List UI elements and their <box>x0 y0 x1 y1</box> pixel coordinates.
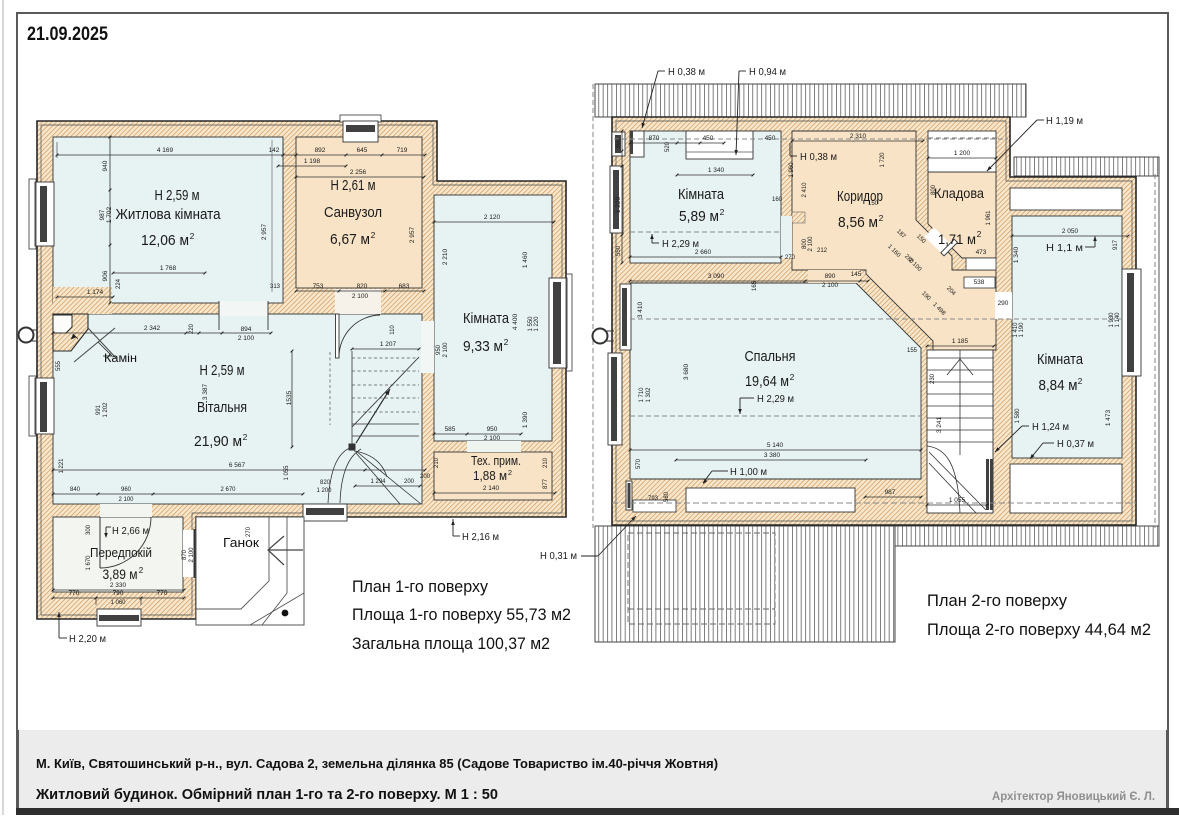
svg-text:1 580: 1 580 <box>1015 408 1021 424</box>
svg-text:Н 1,00 м: Н 1,00 м <box>730 466 767 478</box>
svg-text:3 680: 3 680 <box>683 363 690 380</box>
svg-text:1 221: 1 221 <box>59 458 65 474</box>
svg-text:1 200: 1 200 <box>954 150 971 157</box>
svg-text:200: 200 <box>404 479 415 485</box>
svg-text:1 220: 1 220 <box>534 316 540 332</box>
svg-text:230: 230 <box>930 373 936 384</box>
svg-text:877: 877 <box>543 478 549 489</box>
svg-text:2 100: 2 100 <box>822 282 839 289</box>
svg-text:2 660: 2 660 <box>695 249 712 256</box>
svg-text:2 100: 2 100 <box>352 293 369 300</box>
svg-text:Н 2,61 м: Н 2,61 м <box>331 177 376 194</box>
svg-text:1,88 м: 1,88 м <box>473 469 507 483</box>
svg-text:3,89 м: 3,89 м <box>103 567 138 582</box>
svg-text:892: 892 <box>315 147 326 154</box>
svg-text:793: 793 <box>648 496 659 502</box>
svg-text:2 140: 2 140 <box>483 485 500 492</box>
svg-text:Н 2,59 м: Н 2,59 м <box>155 187 200 204</box>
svg-text:570: 570 <box>636 458 642 469</box>
svg-text:2: 2 <box>243 432 248 442</box>
svg-text:5,89 м: 5,89 м <box>679 208 719 225</box>
svg-text:753: 753 <box>313 283 324 290</box>
svg-text:820: 820 <box>357 283 368 290</box>
svg-text:450: 450 <box>765 135 776 142</box>
svg-text:1 960: 1 960 <box>789 162 795 178</box>
svg-text:2 310: 2 310 <box>850 133 867 140</box>
svg-text:870: 870 <box>182 549 188 560</box>
svg-text:2: 2 <box>879 213 884 223</box>
svg-text:1,71 м: 1,71 м <box>938 231 976 247</box>
svg-text:Камін: Камін <box>104 353 137 365</box>
svg-text:2: 2 <box>139 566 144 575</box>
svg-text:991: 991 <box>96 404 102 415</box>
svg-text:1 390: 1 390 <box>522 411 529 428</box>
svg-text:2 120: 2 120 <box>484 214 501 221</box>
svg-text:Н 2,66 м: Н 2,66 м <box>112 525 149 537</box>
svg-text:Кімната: Кімната <box>463 310 510 327</box>
svg-text:645: 645 <box>357 147 368 154</box>
svg-text:Н 0,94 м: Н 0,94 м <box>749 66 786 78</box>
svg-text:719: 719 <box>397 147 408 154</box>
svg-text:1 710: 1 710 <box>639 387 645 403</box>
svg-text:450: 450 <box>703 135 714 142</box>
svg-text:1 670: 1 670 <box>86 555 92 571</box>
svg-text:Вітальня: Вітальня <box>197 399 247 416</box>
svg-text:5 140: 5 140 <box>767 442 784 449</box>
svg-text:555: 555 <box>56 360 62 371</box>
svg-text:Н 2,16 м: Н 2,16 м <box>462 531 499 543</box>
svg-text:110: 110 <box>390 325 396 335</box>
svg-text:313: 313 <box>270 284 281 290</box>
svg-text:1 055: 1 055 <box>284 465 290 481</box>
svg-text:950: 950 <box>487 426 498 433</box>
svg-text:200: 200 <box>420 474 431 480</box>
svg-text:770: 770 <box>69 590 80 597</box>
svg-text:Н 0,38 м: Н 0,38 м <box>800 151 837 163</box>
svg-text:906: 906 <box>102 270 109 281</box>
svg-text:Площа 2-го поверху 44,64 м2: Площа 2-го поверху 44,64 м2 <box>927 620 1151 639</box>
svg-text:Н 2,20 м: Н 2,20 м <box>69 633 106 645</box>
svg-text:917: 917 <box>1113 239 1119 250</box>
svg-text:1 185: 1 185 <box>952 338 969 345</box>
svg-text:1 220: 1 220 <box>615 196 622 213</box>
svg-text:840: 840 <box>70 487 81 493</box>
svg-text:1 174: 1 174 <box>87 289 104 296</box>
svg-text:2 256: 2 256 <box>350 169 367 176</box>
svg-text:2 330: 2 330 <box>110 582 127 589</box>
svg-text:Н 2,29 м: Н 2,29 м <box>757 393 794 405</box>
svg-text:145: 145 <box>851 271 862 278</box>
svg-text:210: 210 <box>434 457 440 468</box>
svg-text:270: 270 <box>246 526 252 537</box>
svg-text:270: 270 <box>785 255 796 261</box>
svg-text:2 050: 2 050 <box>1062 228 1079 235</box>
svg-text:585: 585 <box>445 426 456 433</box>
svg-text:1 473: 1 473 <box>1105 409 1112 426</box>
svg-text:2: 2 <box>371 230 376 240</box>
svg-text:8,56 м: 8,56 м <box>838 214 878 231</box>
svg-text:Н 2,29 м: Н 2,29 м <box>662 238 699 250</box>
svg-text:2 670: 2 670 <box>220 487 236 493</box>
svg-text:Площа 1-го поверху 55,73 м2: Площа 1-го поверху 55,73 м2 <box>352 605 571 624</box>
svg-text:770: 770 <box>157 590 168 597</box>
svg-text:820: 820 <box>320 480 331 486</box>
svg-text:М. Київ, Святошинський р-н., в: М. Київ, Святошинський р-н., вул. Садова… <box>36 756 718 771</box>
svg-text:Н 1,1 м: Н 1,1 м <box>1046 242 1083 254</box>
svg-text:8,84 м: 8,84 м <box>1039 377 1078 394</box>
svg-text:1 207: 1 207 <box>380 341 397 348</box>
svg-text:Н 0,37 м: Н 0,37 м <box>1057 438 1094 450</box>
svg-text:2 410: 2 410 <box>802 182 808 198</box>
svg-text:2: 2 <box>508 468 512 477</box>
svg-text:6 567: 6 567 <box>229 462 246 469</box>
svg-text:21,90 м: 21,90 м <box>194 433 242 450</box>
svg-text:3 241: 3 241 <box>936 416 943 433</box>
svg-text:1 140: 1 140 <box>1115 312 1121 328</box>
svg-text:Житловий будинок. Обмірний пла: Житловий будинок. Обмірний план 1-го та … <box>35 787 498 803</box>
svg-text:2 100: 2 100 <box>118 497 134 503</box>
svg-text:3 380: 3 380 <box>764 452 781 459</box>
svg-text:9,33 м: 9,33 м <box>463 338 503 355</box>
svg-text:Н 2,59 м: Н 2,59 м <box>200 362 245 379</box>
svg-text:Н 1,19 м: Н 1,19 м <box>1046 115 1083 127</box>
svg-text:2 100: 2 100 <box>189 547 195 563</box>
svg-text:538: 538 <box>974 279 985 286</box>
svg-text:12,06 м: 12,06 м <box>141 232 189 249</box>
svg-text:940: 940 <box>102 160 109 171</box>
svg-text:550: 550 <box>616 245 622 256</box>
svg-text:Н 1,24 м: Н 1,24 м <box>1032 421 1069 433</box>
svg-text:2 210: 2 210 <box>442 248 449 265</box>
svg-text:2: 2 <box>720 207 725 217</box>
svg-text:1 460: 1 460 <box>522 251 529 268</box>
svg-text:1 055: 1 055 <box>949 497 966 504</box>
svg-text:220: 220 <box>189 323 195 334</box>
svg-text:Архітектор Яновицький Є. Л.: Архітектор Яновицький Є. Л. <box>992 791 1155 803</box>
svg-text:Санвузол: Санвузол <box>324 204 382 221</box>
svg-text:2 957: 2 957 <box>409 226 416 243</box>
svg-text:2: 2 <box>1078 376 1083 386</box>
svg-text:1 702: 1 702 <box>106 206 113 223</box>
svg-text:План 1-го поверху: План 1-го поверху <box>352 577 488 596</box>
svg-text:1 720: 1 720 <box>880 152 886 168</box>
svg-text:Загальна площа 100,37 м2: Загальна площа 100,37 м2 <box>352 634 550 653</box>
svg-text:4 169: 4 169 <box>157 147 174 154</box>
svg-text:960: 960 <box>121 487 132 493</box>
svg-text:1 200: 1 200 <box>316 488 332 494</box>
svg-text:950: 950 <box>436 344 442 355</box>
svg-text:Ганок: Ганок <box>223 535 259 550</box>
svg-text:1 961: 1 961 <box>986 210 992 226</box>
svg-text:1 768: 1 768 <box>160 265 177 272</box>
svg-text:Спальня: Спальня <box>745 348 796 365</box>
svg-text:План 2-го поверху: План 2-го поверху <box>927 591 1067 610</box>
svg-text:3 090: 3 090 <box>708 273 725 280</box>
svg-text:1 190: 1 190 <box>1019 322 1025 338</box>
svg-text:224: 224 <box>116 278 122 289</box>
svg-text:Н 0,38 м: Н 0,38 м <box>668 66 705 78</box>
svg-text:Кладова: Кладова <box>934 185 984 201</box>
svg-text:2 100: 2 100 <box>808 236 814 252</box>
svg-text:Кімната: Кімната <box>678 186 725 203</box>
svg-text:212: 212 <box>817 248 828 254</box>
svg-text:160: 160 <box>772 197 783 203</box>
svg-text:Н 0,31 м: Н 0,31 м <box>540 550 577 562</box>
svg-text:3 387: 3 387 <box>202 383 209 400</box>
svg-text:800: 800 <box>931 184 937 195</box>
svg-text:1 294: 1 294 <box>370 479 386 485</box>
svg-text:2: 2 <box>190 231 195 241</box>
svg-text:1 060: 1 060 <box>110 600 126 606</box>
svg-text:165: 165 <box>752 280 758 291</box>
svg-text:987: 987 <box>99 209 106 220</box>
svg-text:1 340: 1 340 <box>1013 246 1020 263</box>
svg-text:210: 210 <box>543 457 549 468</box>
svg-text:155: 155 <box>907 348 918 354</box>
svg-text:790: 790 <box>113 590 124 597</box>
svg-text:2: 2 <box>504 337 509 347</box>
svg-text:890: 890 <box>825 273 836 280</box>
svg-text:520: 520 <box>665 141 671 152</box>
svg-text:2 342: 2 342 <box>144 325 161 332</box>
svg-text:683: 683 <box>399 283 410 290</box>
svg-text:2: 2 <box>790 372 795 382</box>
svg-text:1 302: 1 302 <box>646 387 652 403</box>
svg-text:142: 142 <box>269 147 280 154</box>
svg-text:19,64 м: 19,64 м <box>745 373 789 390</box>
svg-text:4 400: 4 400 <box>512 313 519 330</box>
svg-text:150: 150 <box>868 201 879 207</box>
svg-text:2 100: 2 100 <box>238 335 255 342</box>
svg-text:2 957: 2 957 <box>261 223 268 240</box>
svg-text:1 198: 1 198 <box>304 158 321 165</box>
svg-text:21.09.2025: 21.09.2025 <box>27 24 108 45</box>
svg-text:2 100: 2 100 <box>484 435 501 442</box>
svg-text:1 202: 1 202 <box>103 402 109 418</box>
svg-text:Передпокій: Передпокій <box>90 545 152 560</box>
svg-text:473: 473 <box>976 249 987 256</box>
svg-text:360: 360 <box>616 138 622 149</box>
svg-text:2: 2 <box>977 229 982 239</box>
svg-text:580: 580 <box>664 491 670 502</box>
svg-text:Кімната: Кімната <box>1037 351 1084 368</box>
svg-text:290: 290 <box>998 300 1009 307</box>
svg-text:870: 870 <box>649 135 660 142</box>
svg-text:6,67 м: 6,67 м <box>330 231 370 248</box>
svg-text:1 340: 1 340 <box>708 167 725 174</box>
svg-text:2 100: 2 100 <box>443 342 449 358</box>
svg-text:Житлова кімната: Житлова кімната <box>116 206 222 223</box>
svg-text:894: 894 <box>241 326 252 333</box>
svg-text:987: 987 <box>885 489 896 496</box>
svg-text:Тех. прим.: Тех. прим. <box>471 454 521 468</box>
svg-text:300: 300 <box>86 524 92 535</box>
svg-text:3 410: 3 410 <box>637 301 644 318</box>
